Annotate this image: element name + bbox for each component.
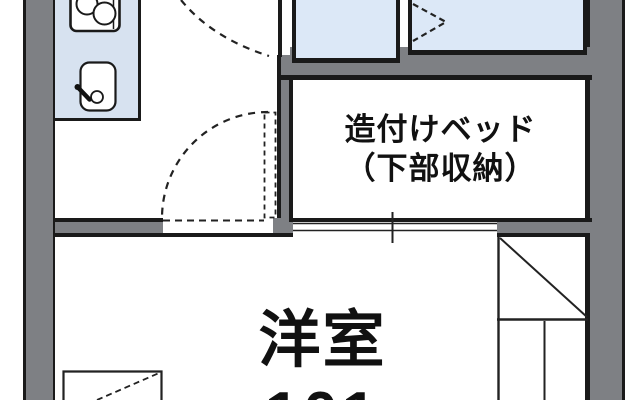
entry-door-swing-icon bbox=[181, 0, 269, 56]
bed-room-label: 造付けベッド （下部収納） bbox=[293, 110, 588, 188]
room-door-leaf-icon bbox=[265, 113, 276, 218]
folding-door-icon bbox=[413, 4, 446, 41]
main-room-label: 洋室 bbox=[200, 310, 445, 372]
sliding-door-icon bbox=[293, 224, 497, 231]
bed-room-label-line1: 造付けベッド bbox=[293, 110, 588, 149]
room-door-swing-icon bbox=[162, 112, 268, 218]
sink-icon bbox=[75, 63, 116, 111]
bed-room-label-line2: （下部収納） bbox=[293, 149, 588, 188]
stove-icon bbox=[71, 0, 120, 31]
closet-diagonal-icon bbox=[497, 237, 588, 400]
furniture-icon bbox=[64, 372, 162, 400]
room-number-label: 101 bbox=[200, 384, 445, 400]
floor-plan: 造付けベッド （下部収納） 洋室 101 bbox=[0, 0, 640, 400]
